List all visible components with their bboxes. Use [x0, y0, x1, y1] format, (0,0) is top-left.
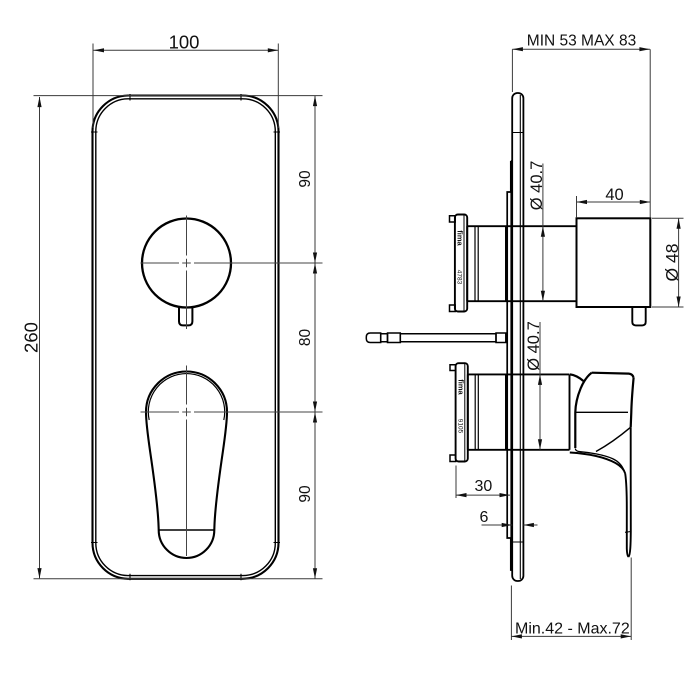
svg-text:30: 30 [475, 478, 493, 495]
svg-text:Ø 48: Ø 48 [662, 244, 682, 282]
svg-text:100: 100 [169, 32, 200, 53]
svg-text:260: 260 [21, 322, 42, 353]
svg-text:90: 90 [297, 170, 314, 188]
svg-text:90: 90 [297, 485, 314, 503]
svg-text:80: 80 [297, 329, 314, 347]
svg-text:Min.42 - Max.72: Min.42 - Max.72 [515, 621, 630, 638]
svg-text:MIN 53 MAX 83: MIN 53 MAX 83 [527, 33, 636, 50]
svg-text:fima: fima [456, 379, 465, 395]
svg-text:fima: fima [456, 230, 465, 246]
svg-text:4783: 4783 [456, 270, 463, 285]
svg-text:6: 6 [480, 509, 489, 526]
svg-text:Ø 40.7: Ø 40.7 [528, 161, 546, 211]
svg-text:Ø 40.7: Ø 40.7 [525, 321, 543, 371]
svg-text:40: 40 [605, 186, 623, 204]
svg-text:9105: 9105 [456, 419, 463, 434]
